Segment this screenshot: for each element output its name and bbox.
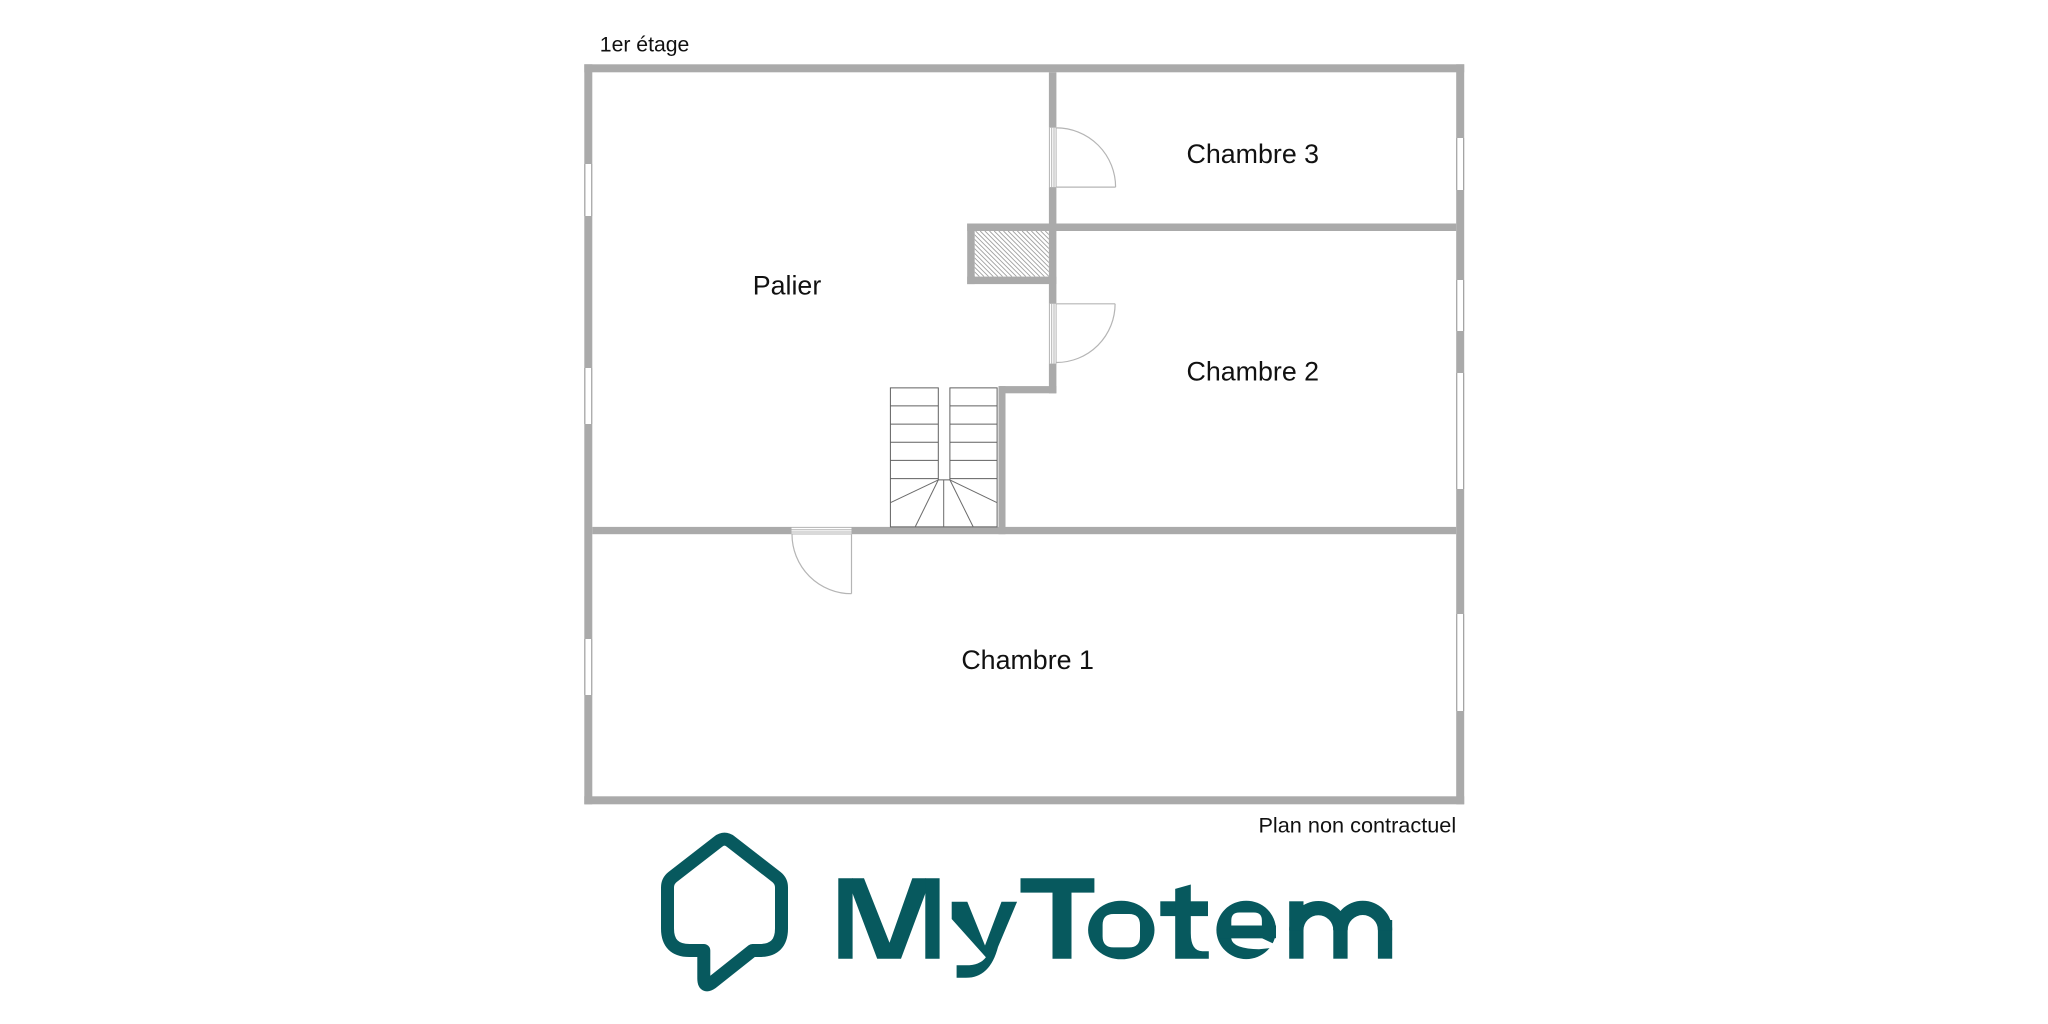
svg-text:Chambre 3: Chambre 3 <box>1187 139 1320 169</box>
svg-text:Chambre 1: Chambre 1 <box>961 645 1094 675</box>
svg-text:Palier: Palier <box>753 270 822 300</box>
svg-text:1er étage: 1er étage <box>600 34 690 57</box>
svg-text:Plan non contractuel: Plan non contractuel <box>1258 813 1456 838</box>
svg-text:Chambre 2: Chambre 2 <box>1187 357 1320 387</box>
